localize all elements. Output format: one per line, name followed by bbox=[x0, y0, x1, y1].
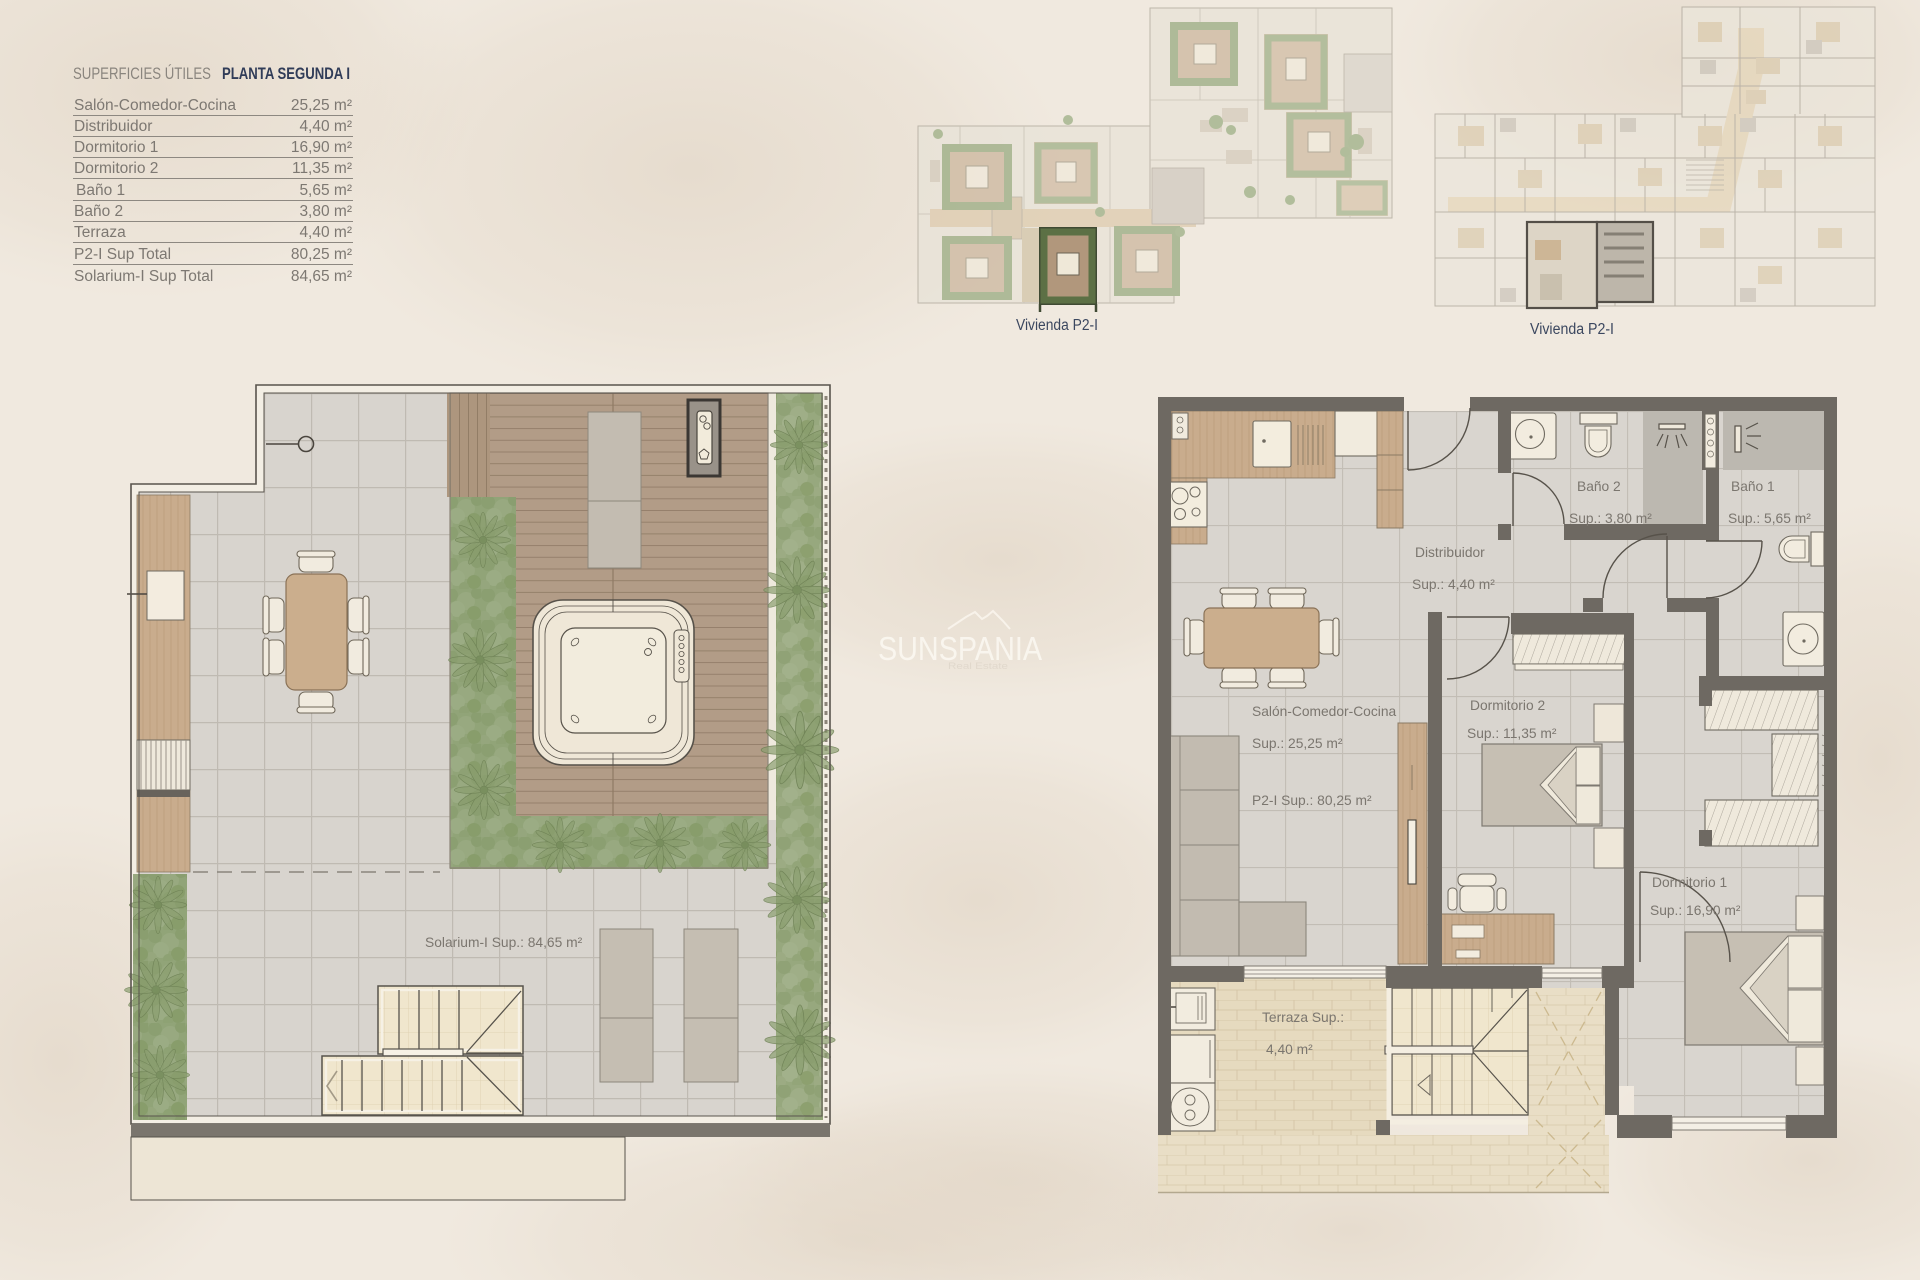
svg-text:SUPERFICIES ÚTILES: SUPERFICIES ÚTILES bbox=[73, 64, 211, 83]
svg-text:Baño 1: Baño 1 bbox=[76, 182, 125, 199]
svg-text:Real Estate: Real Estate bbox=[948, 661, 1008, 672]
svg-text:Dormitorio 2: Dormitorio 2 bbox=[74, 160, 158, 177]
svg-text:Sup.: 5,65 m²: Sup.: 5,65 m² bbox=[1728, 511, 1811, 526]
svg-text:Sup.: 16,90 m²: Sup.: 16,90 m² bbox=[1650, 903, 1741, 918]
svg-text:Sup.: 3,80 m²: Sup.: 3,80 m² bbox=[1569, 511, 1652, 526]
svg-text:Vivienda P2-I: Vivienda P2-I bbox=[1016, 317, 1098, 334]
svg-text:Baño 1: Baño 1 bbox=[1731, 479, 1775, 494]
svg-text:4,40 m²: 4,40 m² bbox=[1266, 1042, 1313, 1057]
svg-text:Baño 2: Baño 2 bbox=[1577, 479, 1621, 494]
svg-text:5,65 m²: 5,65 m² bbox=[299, 182, 352, 199]
svg-text:Solarium-I Sup Total: Solarium-I Sup Total bbox=[74, 268, 213, 285]
svg-text:Terraza: Terraza bbox=[74, 224, 126, 241]
svg-text:Solarium-I Sup.: 84,65 m²: Solarium-I Sup.: 84,65 m² bbox=[425, 935, 583, 950]
svg-text:Salón-Comedor-Cocina: Salón-Comedor-Cocina bbox=[74, 97, 236, 114]
svg-text:Dormitorio 1: Dormitorio 1 bbox=[74, 139, 158, 156]
svg-text:3,80 m²: 3,80 m² bbox=[299, 203, 352, 220]
svg-text:16,90 m²: 16,90 m² bbox=[291, 139, 352, 156]
svg-text:Dormitorio 2: Dormitorio 2 bbox=[1470, 698, 1545, 713]
svg-text:Sup.: 11,35 m²: Sup.: 11,35 m² bbox=[1467, 726, 1557, 741]
svg-text:P2-I Sup.: 80,25 m²: P2-I Sup.: 80,25 m² bbox=[1252, 793, 1372, 808]
svg-text:80,25 m²: 80,25 m² bbox=[291, 246, 352, 263]
svg-text:11,35 m²: 11,35 m² bbox=[292, 160, 352, 177]
svg-text:Baño 2: Baño 2 bbox=[74, 203, 123, 220]
svg-text:Salón-Comedor-Cocina: Salón-Comedor-Cocina bbox=[1252, 704, 1396, 719]
svg-text:PLANTA SEGUNDA I: PLANTA SEGUNDA I bbox=[222, 64, 350, 83]
svg-text:Sup.: 4,40 m²: Sup.: 4,40 m² bbox=[1412, 577, 1495, 592]
svg-text:Distribuidor: Distribuidor bbox=[74, 118, 152, 135]
svg-text:Vivienda P2-I: Vivienda P2-I bbox=[1530, 321, 1614, 338]
svg-text:Sup.: 25,25 m²: Sup.: 25,25 m² bbox=[1252, 736, 1343, 751]
svg-text:84,65 m²: 84,65 m² bbox=[291, 268, 352, 285]
svg-text:4,40 m²: 4,40 m² bbox=[299, 118, 352, 135]
svg-text:Dormitorio 1: Dormitorio 1 bbox=[1652, 875, 1727, 890]
svg-text:P2-I Sup Total: P2-I Sup Total bbox=[74, 246, 171, 263]
svg-text:Terraza Sup.:: Terraza Sup.: bbox=[1262, 1010, 1344, 1025]
svg-text:Distribuidor: Distribuidor bbox=[1415, 545, 1485, 560]
svg-text:25,25 m²: 25,25 m² bbox=[291, 97, 352, 114]
svg-text:4,40 m²: 4,40 m² bbox=[299, 224, 352, 241]
